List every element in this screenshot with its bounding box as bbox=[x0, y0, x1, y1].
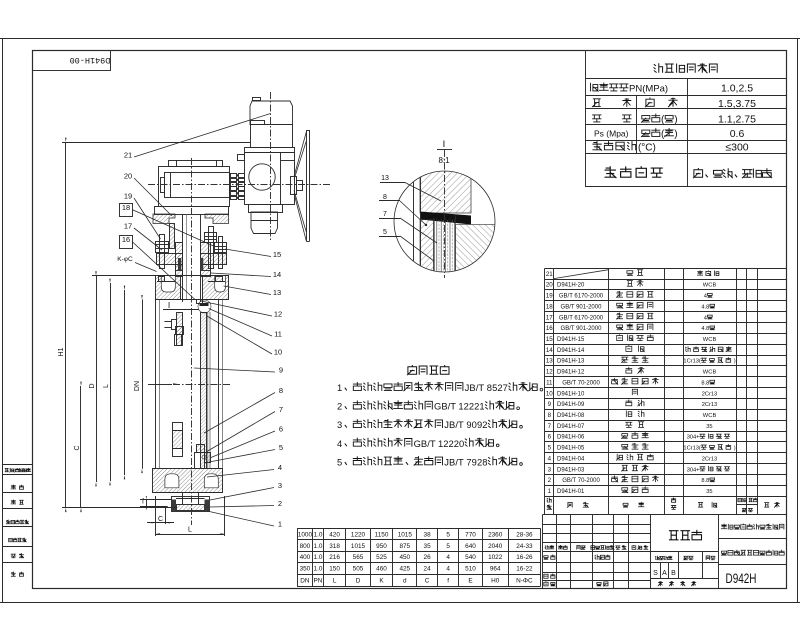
svg-text:1.0: 1.0 bbox=[314, 554, 323, 561]
svg-text:5: 5 bbox=[279, 443, 283, 452]
svg-text:D941H-06: D941H-06 bbox=[557, 435, 585, 441]
svg-text:11: 11 bbox=[546, 379, 553, 386]
svg-text:2Cr13: 2Cr13 bbox=[702, 402, 718, 408]
svg-text:16: 16 bbox=[546, 325, 553, 332]
svg-text:): ) bbox=[734, 446, 736, 452]
svg-text:1.0,2.5: 1.0,2.5 bbox=[721, 83, 753, 95]
svg-text:38: 38 bbox=[424, 532, 432, 539]
svg-text:): ) bbox=[734, 359, 736, 365]
svg-text:24: 24 bbox=[424, 566, 432, 573]
svg-text:WCB: WCB bbox=[703, 370, 717, 376]
svg-text:1022: 1022 bbox=[488, 554, 503, 561]
svg-text:Ps (Mpa): Ps (Mpa) bbox=[594, 129, 629, 139]
svg-text:964: 964 bbox=[490, 566, 501, 573]
svg-text:B: B bbox=[671, 570, 676, 577]
svg-text:H1: H1 bbox=[58, 347, 65, 356]
svg-text:13: 13 bbox=[273, 288, 281, 297]
svg-text:318: 318 bbox=[329, 543, 340, 550]
svg-text:510: 510 bbox=[465, 566, 476, 573]
svg-text:4: 4 bbox=[704, 294, 707, 300]
svg-text:GB/T 901-2000: GB/T 901-2000 bbox=[561, 326, 603, 332]
svg-text:1Cr13(: 1Cr13( bbox=[683, 359, 700, 365]
svg-text:1015: 1015 bbox=[351, 543, 366, 550]
svg-text:JB/T 8527: JB/T 8527 bbox=[465, 382, 508, 393]
svg-text:1015: 1015 bbox=[398, 532, 413, 539]
svg-text:I: I bbox=[443, 139, 446, 150]
svg-text:4: 4 bbox=[548, 455, 552, 462]
svg-text:GB/T 6170-2000: GB/T 6170-2000 bbox=[559, 315, 604, 321]
svg-text:1.5,3.75: 1.5,3.75 bbox=[718, 98, 756, 110]
svg-text:d: d bbox=[403, 577, 407, 584]
svg-text:6: 6 bbox=[548, 434, 552, 441]
svg-text:1Cr13(: 1Cr13( bbox=[683, 446, 700, 452]
svg-text:19: 19 bbox=[124, 192, 132, 201]
svg-text:6: 6 bbox=[279, 425, 283, 434]
svg-text:16: 16 bbox=[122, 235, 130, 244]
svg-text:9: 9 bbox=[548, 401, 552, 408]
svg-text:14: 14 bbox=[273, 270, 281, 279]
svg-text:19: 19 bbox=[546, 293, 553, 300]
svg-text:.: . bbox=[636, 546, 637, 551]
svg-text:S: S bbox=[653, 570, 658, 577]
svg-text:3: 3 bbox=[278, 481, 282, 490]
svg-text:2: 2 bbox=[337, 401, 342, 412]
svg-text:D: D bbox=[89, 383, 96, 388]
svg-text:21: 21 bbox=[124, 151, 132, 160]
svg-text:8:1: 8:1 bbox=[438, 156, 450, 165]
svg-text:D941H-20: D941H-20 bbox=[557, 283, 585, 289]
svg-text:f: f bbox=[447, 577, 449, 584]
svg-text:9: 9 bbox=[279, 366, 283, 375]
svg-text:24-33: 24-33 bbox=[516, 543, 533, 550]
svg-text:4: 4 bbox=[446, 566, 450, 573]
svg-text:D941H-14: D941H-14 bbox=[557, 348, 585, 354]
svg-text:): ) bbox=[674, 129, 677, 140]
svg-text:D941H-10: D941H-10 bbox=[557, 391, 585, 397]
svg-text:5: 5 bbox=[337, 456, 342, 467]
svg-text:11: 11 bbox=[274, 330, 282, 339]
svg-text:WCB: WCB bbox=[703, 413, 717, 419]
svg-text:8.8: 8.8 bbox=[701, 380, 709, 386]
svg-text:GB/T 12220: GB/T 12220 bbox=[414, 438, 465, 449]
svg-text:PN: PN bbox=[314, 577, 323, 584]
svg-text:): ) bbox=[674, 115, 677, 126]
svg-text:D941H-05: D941H-05 bbox=[557, 446, 585, 452]
svg-text:C: C bbox=[74, 445, 81, 450]
svg-text:GB/T 70-2000: GB/T 70-2000 bbox=[562, 478, 600, 484]
svg-text:(: ( bbox=[661, 129, 665, 140]
svg-text:1.0: 1.0 bbox=[314, 543, 323, 550]
svg-text:E: E bbox=[468, 577, 472, 584]
svg-text:1220: 1220 bbox=[351, 532, 366, 539]
svg-text:L: L bbox=[333, 577, 337, 584]
svg-text:28-36: 28-36 bbox=[516, 532, 533, 539]
svg-text:D942H: D942H bbox=[726, 570, 757, 586]
svg-text:15: 15 bbox=[273, 250, 281, 259]
svg-text:460: 460 bbox=[376, 566, 387, 573]
svg-text:770: 770 bbox=[465, 532, 476, 539]
svg-text:2Cr13: 2Cr13 bbox=[702, 391, 718, 397]
svg-text:2040: 2040 bbox=[488, 543, 503, 550]
svg-text:.: . bbox=[642, 546, 643, 551]
svg-text:PN(MPa): PN(MPa) bbox=[629, 84, 668, 95]
svg-text:1.1,2.75: 1.1,2.75 bbox=[718, 114, 756, 126]
svg-text:4: 4 bbox=[337, 438, 342, 449]
svg-text:5: 5 bbox=[383, 229, 387, 236]
svg-text:DN: DN bbox=[300, 577, 310, 584]
svg-text:8: 8 bbox=[548, 412, 552, 419]
svg-text:D941H-12: D941H-12 bbox=[557, 370, 585, 376]
svg-text:26: 26 bbox=[424, 554, 432, 561]
svg-text:A: A bbox=[662, 570, 667, 577]
svg-text:D941H-15: D941H-15 bbox=[557, 337, 585, 343]
svg-text:4: 4 bbox=[278, 463, 282, 472]
svg-text:(°C): (°C) bbox=[638, 143, 656, 154]
svg-text:7: 7 bbox=[383, 211, 387, 218]
svg-text:L: L bbox=[188, 527, 192, 534]
svg-text:1000: 1000 bbox=[298, 532, 313, 539]
svg-text:D941H-09: D941H-09 bbox=[557, 402, 585, 408]
svg-text:1150: 1150 bbox=[375, 532, 389, 539]
svg-text:3: 3 bbox=[337, 419, 342, 430]
svg-text:1: 1 bbox=[548, 488, 552, 495]
svg-text:17: 17 bbox=[546, 314, 553, 321]
svg-text:10: 10 bbox=[274, 348, 282, 357]
svg-text:10: 10 bbox=[546, 390, 553, 397]
svg-text:1: 1 bbox=[337, 382, 342, 393]
svg-text:1: 1 bbox=[278, 520, 282, 529]
svg-text:15: 15 bbox=[546, 336, 553, 343]
svg-text:4.8: 4.8 bbox=[701, 326, 709, 332]
svg-text:425: 425 bbox=[399, 566, 410, 573]
svg-text:16-26: 16-26 bbox=[516, 554, 533, 561]
svg-text:5: 5 bbox=[446, 543, 450, 550]
svg-text:C: C bbox=[425, 577, 430, 584]
svg-text:35: 35 bbox=[706, 424, 712, 430]
svg-text:D941H-04: D941H-04 bbox=[557, 456, 585, 462]
svg-text:505: 505 bbox=[353, 566, 364, 573]
svg-text:17: 17 bbox=[124, 222, 132, 231]
svg-text:I: I bbox=[168, 300, 170, 310]
svg-text:640: 640 bbox=[465, 543, 476, 550]
svg-text:GB/T 70-2000: GB/T 70-2000 bbox=[562, 380, 600, 386]
svg-text:304+: 304+ bbox=[687, 467, 700, 473]
svg-text:5: 5 bbox=[446, 532, 450, 539]
svg-text:GB/T 6170-2000: GB/T 6170-2000 bbox=[559, 294, 604, 300]
svg-text:2360: 2360 bbox=[488, 532, 503, 539]
svg-text:4: 4 bbox=[446, 554, 450, 561]
svg-text:D: D bbox=[356, 577, 361, 584]
svg-text:DN: DN bbox=[134, 381, 141, 391]
svg-text:18: 18 bbox=[122, 203, 130, 212]
svg-text:H0: H0 bbox=[491, 577, 500, 584]
svg-text:420: 420 bbox=[329, 532, 340, 539]
svg-text:12: 12 bbox=[546, 369, 553, 376]
svg-text:2: 2 bbox=[548, 477, 552, 484]
svg-text:450: 450 bbox=[399, 554, 410, 561]
svg-text:2: 2 bbox=[278, 499, 282, 508]
svg-text:800: 800 bbox=[300, 543, 311, 550]
svg-text:C: C bbox=[158, 516, 163, 523]
svg-text:≤300: ≤300 bbox=[725, 142, 748, 154]
svg-text:350: 350 bbox=[300, 566, 311, 573]
svg-text:13: 13 bbox=[381, 175, 389, 182]
svg-text:8.8: 8.8 bbox=[701, 478, 709, 484]
svg-text:WCB: WCB bbox=[703, 283, 717, 289]
svg-text:D941H-13: D941H-13 bbox=[557, 359, 585, 365]
svg-text:D941H-08: D941H-08 bbox=[557, 413, 585, 419]
svg-text:WCB: WCB bbox=[703, 337, 717, 343]
svg-text:13: 13 bbox=[546, 358, 553, 365]
svg-text:1.0: 1.0 bbox=[314, 532, 323, 539]
svg-text:0.6: 0.6 bbox=[730, 128, 745, 140]
svg-text:L: L bbox=[103, 384, 110, 388]
svg-text:216: 216 bbox=[329, 554, 340, 561]
svg-text:N-ΦC: N-ΦC bbox=[516, 577, 533, 584]
svg-text:JB/T 7928: JB/T 7928 bbox=[444, 456, 487, 467]
svg-text:875: 875 bbox=[399, 543, 410, 550]
svg-text:540: 540 bbox=[465, 554, 476, 561]
svg-text:35: 35 bbox=[706, 489, 712, 495]
svg-text:2Cr13: 2Cr13 bbox=[702, 456, 718, 462]
svg-text:D941H-01: D941H-01 bbox=[557, 489, 585, 495]
svg-text:14: 14 bbox=[546, 347, 553, 354]
svg-text:JB/T 9092: JB/T 9092 bbox=[444, 419, 487, 430]
svg-text:950: 950 bbox=[376, 543, 387, 550]
svg-text:3: 3 bbox=[548, 466, 552, 473]
svg-text:4.8: 4.8 bbox=[701, 304, 709, 310]
svg-text:525: 525 bbox=[376, 554, 387, 561]
svg-text:35: 35 bbox=[424, 543, 432, 550]
svg-text:(: ( bbox=[661, 115, 665, 126]
svg-text:20: 20 bbox=[124, 172, 132, 181]
svg-text:GB/T 12221: GB/T 12221 bbox=[434, 401, 485, 412]
svg-text:K: K bbox=[379, 577, 384, 584]
svg-text:400: 400 bbox=[300, 554, 311, 561]
svg-text:GB/T 901-2000: GB/T 901-2000 bbox=[561, 304, 603, 310]
svg-text:20: 20 bbox=[546, 282, 553, 289]
svg-text:1.0: 1.0 bbox=[314, 566, 323, 573]
svg-text:18: 18 bbox=[546, 303, 553, 310]
svg-text:304+: 304+ bbox=[687, 435, 700, 441]
svg-text:16-22: 16-22 bbox=[516, 566, 533, 573]
svg-text:K-φC: K-φC bbox=[117, 256, 133, 263]
svg-text:D941H-00: D941H-00 bbox=[70, 55, 111, 65]
svg-text:565: 565 bbox=[353, 554, 364, 561]
svg-text:8: 8 bbox=[279, 386, 283, 395]
svg-text:8: 8 bbox=[383, 194, 387, 201]
svg-text:7: 7 bbox=[279, 405, 283, 414]
svg-text:7: 7 bbox=[548, 423, 552, 430]
svg-text:D941H-03: D941H-03 bbox=[557, 467, 585, 473]
svg-text:150: 150 bbox=[329, 566, 340, 573]
svg-text:4: 4 bbox=[704, 315, 707, 321]
svg-text:5: 5 bbox=[548, 445, 552, 452]
svg-text:D941H-07: D941H-07 bbox=[557, 424, 585, 430]
svg-text:12: 12 bbox=[274, 310, 282, 319]
svg-text:21: 21 bbox=[546, 271, 553, 278]
